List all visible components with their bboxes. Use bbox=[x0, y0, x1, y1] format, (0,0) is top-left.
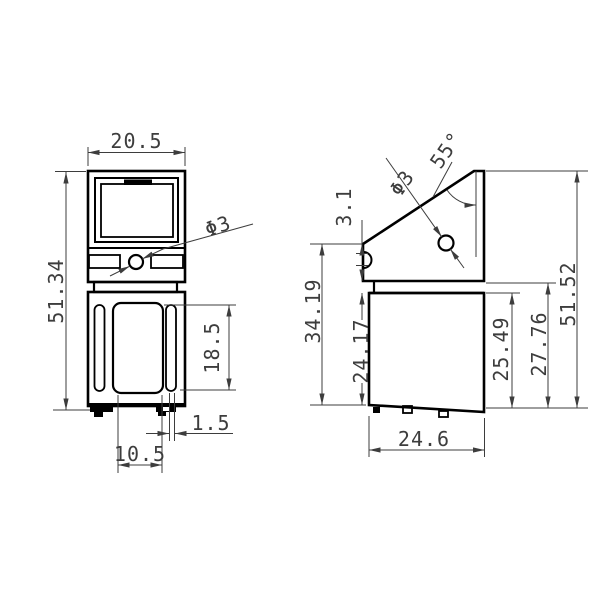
dim-side-hole: Φ3 bbox=[385, 165, 420, 200]
side-hole bbox=[439, 236, 454, 251]
dim-front-foot-span: 10.5 bbox=[114, 442, 166, 466]
side-view bbox=[363, 171, 484, 417]
front-neck bbox=[94, 282, 177, 292]
front-hole bbox=[129, 255, 143, 269]
front-center-panel bbox=[113, 303, 163, 393]
front-screen bbox=[101, 184, 173, 237]
front-left-button bbox=[89, 255, 120, 268]
front-right-slot bbox=[166, 305, 176, 391]
side-left-foot bbox=[373, 407, 380, 413]
side-right-foot bbox=[439, 411, 448, 417]
dim-front-width: 20.5 bbox=[110, 129, 162, 153]
dim-front-panel-height: 18.5 bbox=[200, 321, 224, 373]
front-left-slot bbox=[95, 305, 105, 391]
front-screen-bezel bbox=[95, 178, 178, 242]
dim-side-upper-height: 34.19 bbox=[301, 278, 325, 343]
front-screen-top-bar bbox=[124, 180, 152, 186]
front-monitor-outline bbox=[88, 171, 185, 282]
dim-side-box-height: 24.17 bbox=[349, 318, 373, 383]
front-left-foot bbox=[90, 406, 113, 412]
dim-side-angle: 55° bbox=[425, 127, 467, 173]
dim-front-height: 51.34 bbox=[44, 258, 68, 323]
engineering-drawing: 20.5 51.34 Φ3 18.5 1.5 10.5 bbox=[0, 0, 600, 600]
dim-side-depth: 24.6 bbox=[398, 427, 450, 451]
side-base-outline bbox=[369, 293, 484, 412]
dim-front-slot-offset: 1.5 bbox=[191, 411, 230, 435]
front-right-button bbox=[151, 255, 183, 268]
front-right-foot-gap bbox=[163, 407, 169, 411]
front-left-foot-tab bbox=[94, 412, 103, 417]
side-head-outline bbox=[363, 171, 484, 281]
dim-side-notch-offset: 3.1 bbox=[332, 187, 356, 226]
front-base-outline bbox=[88, 292, 185, 406]
dim-side-mid-height: 27.76 bbox=[527, 311, 551, 376]
drawing-canvas: 20.5 51.34 Φ3 18.5 1.5 10.5 bbox=[0, 0, 600, 600]
dim-side-total-height: 51.52 bbox=[556, 261, 580, 326]
front-view bbox=[88, 171, 185, 417]
dim-side-inner-height: 25.49 bbox=[489, 316, 513, 381]
